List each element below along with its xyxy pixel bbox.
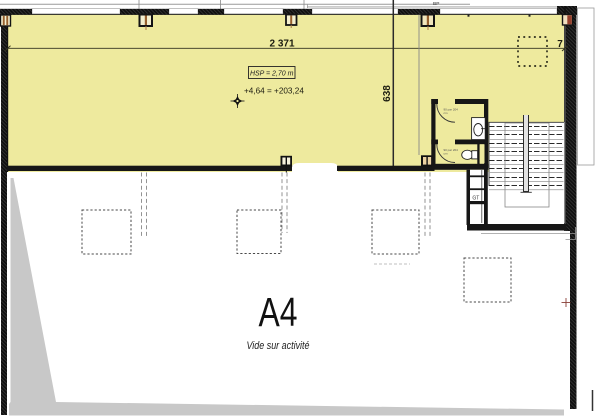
svg-text:7: 7: [557, 39, 563, 50]
svg-text:GT: GT: [472, 196, 479, 202]
svg-text:638: 638: [382, 85, 393, 102]
svg-text:BP: BP: [433, 1, 439, 7]
svg-text:+4,64 = +203,24: +4,64 = +203,24: [244, 87, 304, 96]
svg-text:cm: cm: [444, 151, 449, 155]
svg-text:A4: A4: [259, 289, 298, 335]
svg-text:2 371: 2 371: [269, 39, 294, 50]
svg-text:HSP = 2,70 m: HSP = 2,70 m: [250, 71, 294, 78]
svg-text:Vide sur activité: Vide sur activité: [247, 340, 310, 352]
svg-text:cm: cm: [444, 111, 449, 115]
